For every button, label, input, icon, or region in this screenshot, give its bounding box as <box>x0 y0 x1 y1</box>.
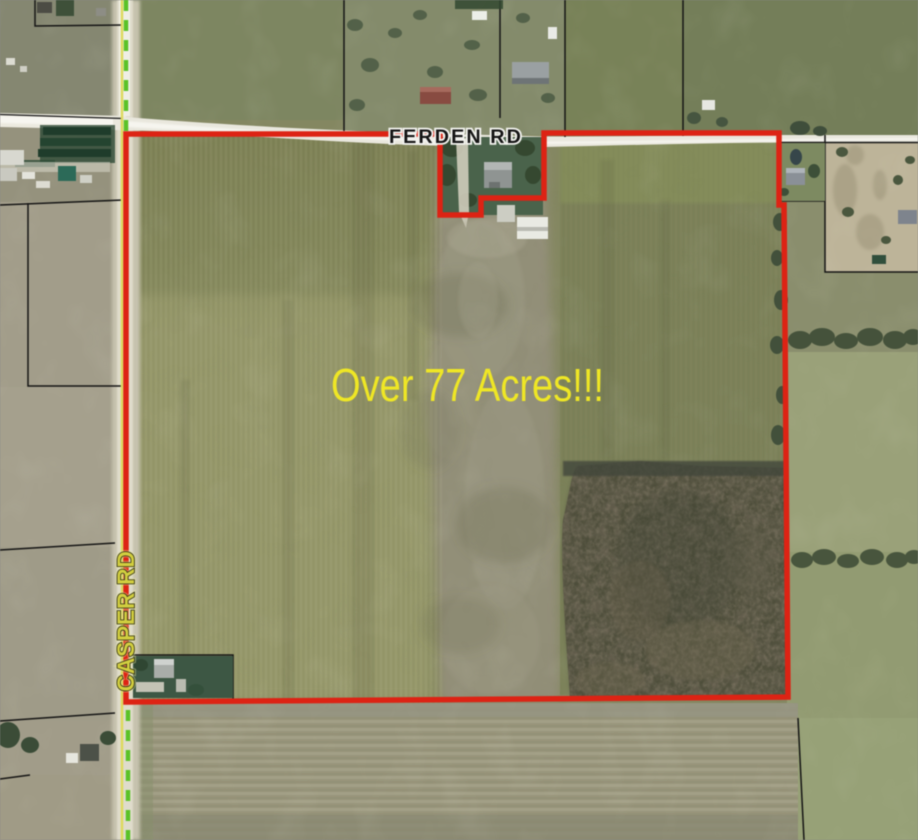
svg-text:CASPER RD: CASPER RD <box>113 551 140 692</box>
svg-text:FERDEN RD: FERDEN RD <box>389 127 523 148</box>
svg-text:Over 77 Acres!!!: Over 77 Acres!!! <box>331 359 604 411</box>
